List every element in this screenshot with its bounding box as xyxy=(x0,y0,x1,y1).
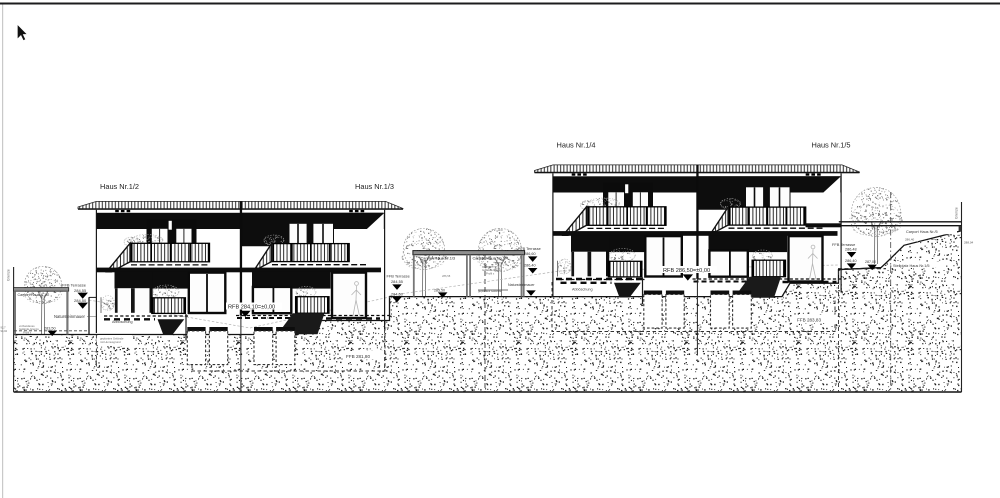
svg-text:Carport Haus No.1/4: Carport Haus No.1/4 xyxy=(473,256,510,261)
svg-text:FFB 283,83: FFB 283,83 xyxy=(797,318,821,323)
svg-text:Abböschung: Abböschung xyxy=(112,320,133,324)
svg-text:92,7: 92,7 xyxy=(1,326,7,330)
svg-text:Haus Nr.1/2: Haus Nr.1/2 xyxy=(100,182,139,191)
svg-text:FFB Terrasse: FFB Terrasse xyxy=(518,247,541,251)
svg-text:FFB Terrasse: FFB Terrasse xyxy=(62,283,87,288)
svg-text:vorhandenes: vorhandenes xyxy=(482,265,498,269)
svg-text:284,50: 284,50 xyxy=(74,298,87,303)
svg-text:286,48: 286,48 xyxy=(845,248,857,252)
svg-text:Haus Nr.1/5: Haus Nr.1/5 xyxy=(812,141,851,150)
svg-text:Carport Haus Nr./5: Carport Haus Nr./5 xyxy=(906,230,938,234)
svg-text:286,58: 286,58 xyxy=(442,274,451,278)
svg-text:Carport Haus Nr.1/3: Carport Haus Nr.1/3 xyxy=(421,256,456,261)
svg-text:287,00: 287,00 xyxy=(865,260,876,264)
svg-text:FFB Terrasse: FFB Terrasse xyxy=(387,274,410,279)
svg-text:Stellplatz Haus Nr.1/5: Stellplatz Haus Nr.1/5 xyxy=(893,264,930,268)
svg-text:284,50: 284,50 xyxy=(391,292,404,297)
svg-text:283,50: 283,50 xyxy=(44,326,56,330)
svg-text:Grenze: Grenze xyxy=(7,269,11,281)
svg-text:Natursteinmauer: Natursteinmauer xyxy=(54,314,86,319)
svg-text:Gelände-Grenze: Gelände-Grenze xyxy=(482,268,502,272)
svg-text:94,04: 94,04 xyxy=(1,329,8,333)
svg-text:Carport Haus N.1/2: Carport Haus N.1/2 xyxy=(18,293,50,297)
svg-text:RFB 286,50=±0,00: RFB 286,50=±0,00 xyxy=(663,268,710,274)
svg-text:288,04: 288,04 xyxy=(964,241,974,245)
svg-text:Haus Nr.1/3: Haus Nr.1/3 xyxy=(355,182,394,191)
svg-text:286,60: 286,60 xyxy=(524,252,536,256)
svg-text:286,64: 286,64 xyxy=(261,316,271,320)
svg-text:285,50: 285,50 xyxy=(434,288,445,292)
svg-text:mit Humusgrund: mit Humusgrund xyxy=(100,340,121,344)
svg-text:Abböschung: Abböschung xyxy=(572,288,593,292)
svg-text:Haus Nr.1/4: Haus Nr.1/4 xyxy=(557,141,596,150)
svg-text:286,40: 286,40 xyxy=(845,259,857,263)
svg-text:286,40: 286,40 xyxy=(524,264,536,268)
svg-text:286,40: 286,40 xyxy=(905,238,915,242)
svg-text:geplantes Gelände: geplantes Gelände xyxy=(478,289,502,293)
svg-text:Profil x: Profil x xyxy=(23,330,32,334)
svg-text:284,55: 284,55 xyxy=(391,279,403,284)
svg-text:Natursteinmauer: Natursteinmauer xyxy=(508,283,535,287)
svg-text:RFB 284,10=±0,00: RFB 284,10=±0,00 xyxy=(228,305,275,311)
svg-text:Grenze: Grenze xyxy=(955,207,959,219)
svg-text:FFB Terrasse: FFB Terrasse xyxy=(832,242,855,247)
svg-text:Profil x: Profil x xyxy=(486,272,495,276)
svg-text:FFB 281,80: FFB 281,80 xyxy=(346,354,370,359)
svg-text:284,55: 284,55 xyxy=(74,288,87,293)
